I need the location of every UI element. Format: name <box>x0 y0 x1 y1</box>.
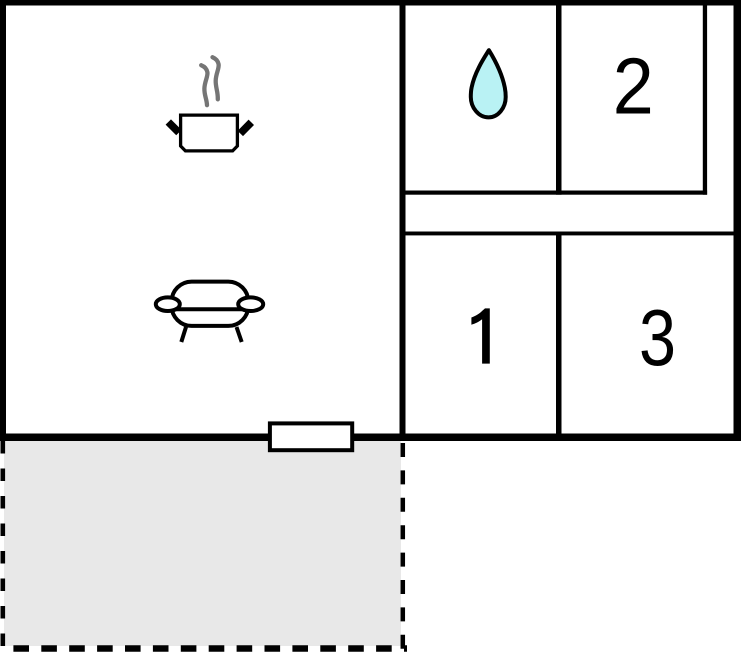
svg-text:3: 3 <box>639 293 676 382</box>
svg-text:2: 2 <box>613 42 654 131</box>
